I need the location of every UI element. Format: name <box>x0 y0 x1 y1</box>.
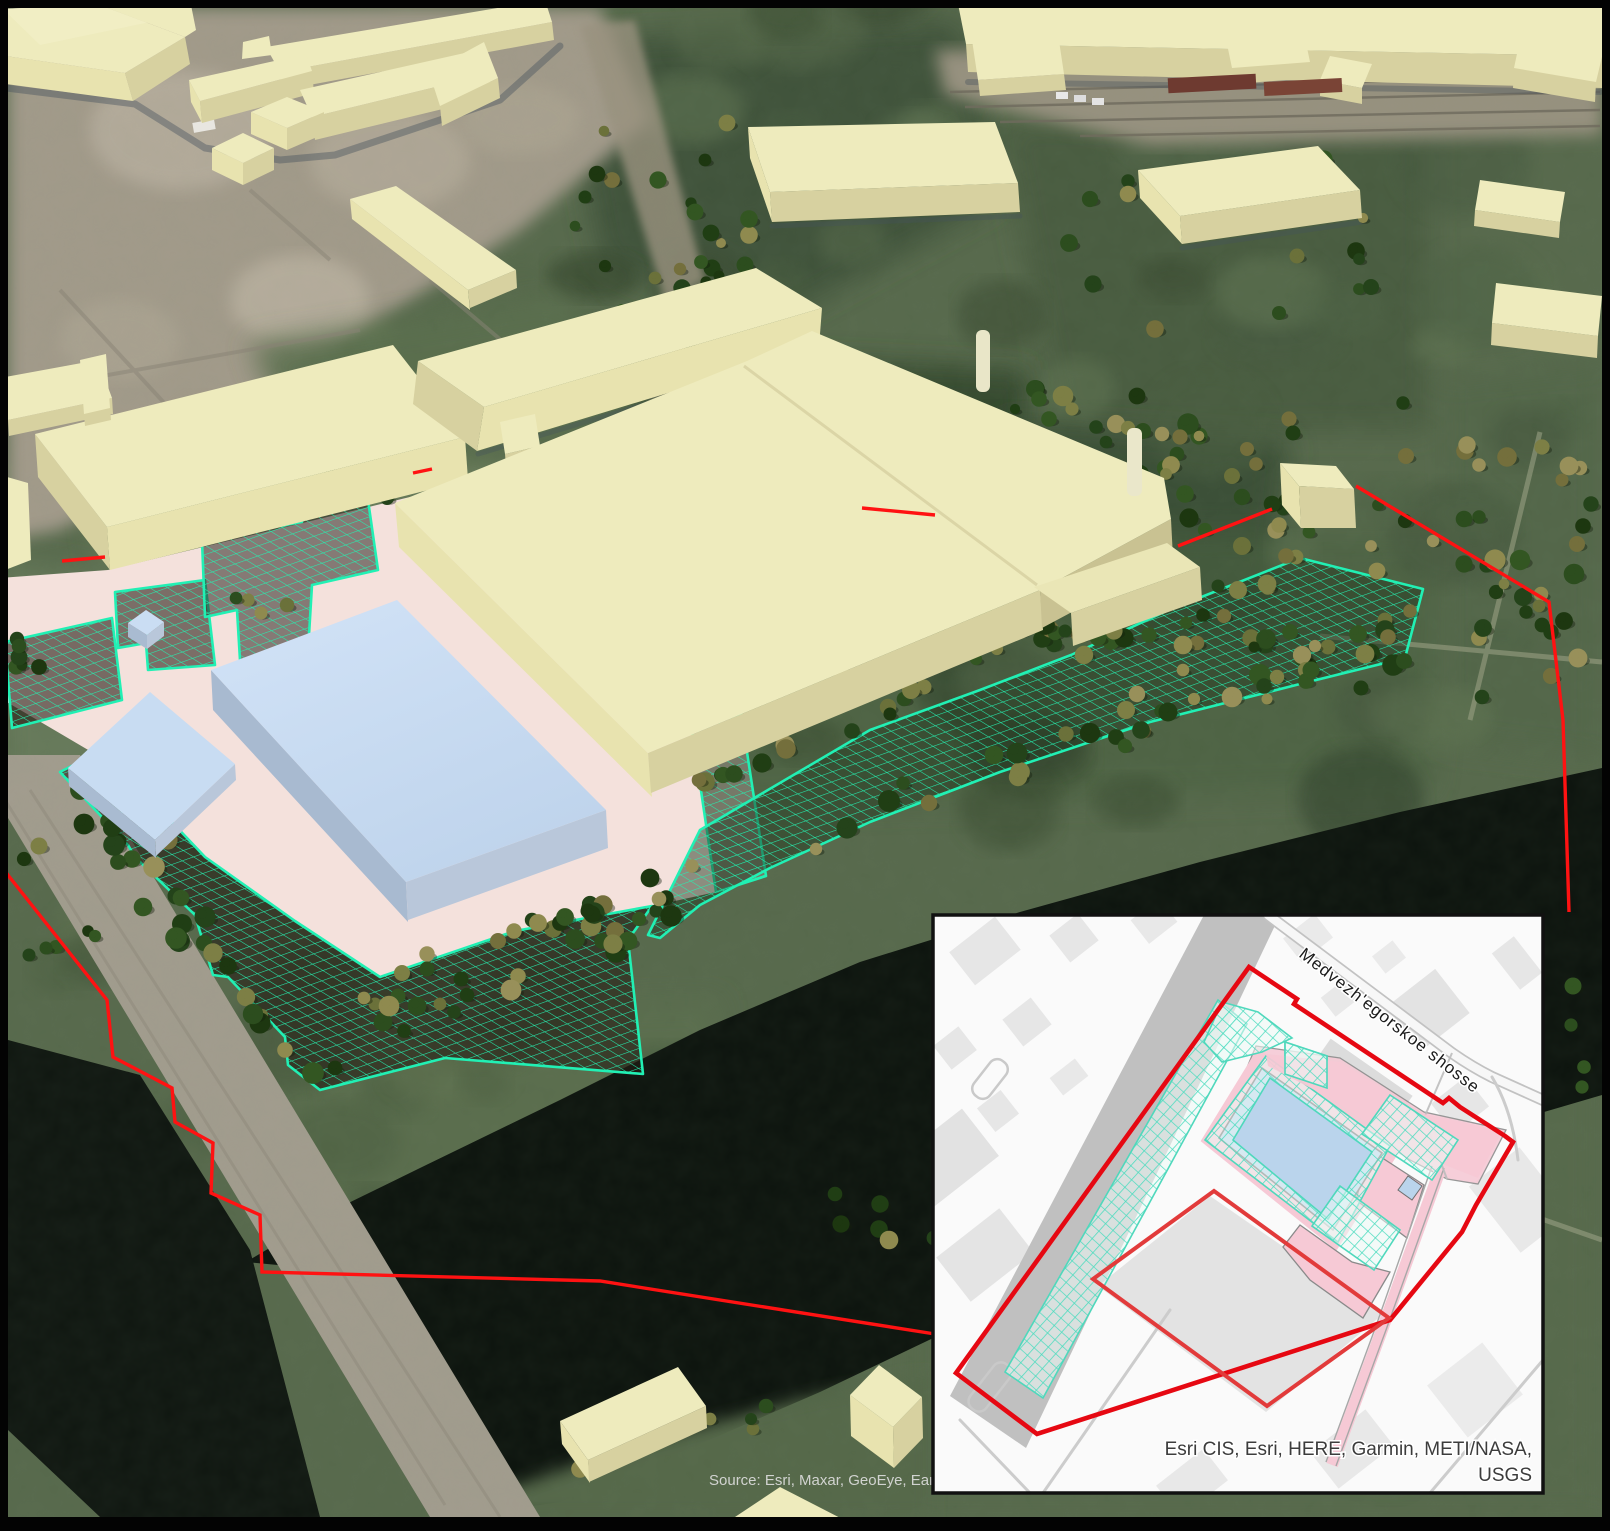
svg-text:USGS: USGS <box>1478 1465 1532 1486</box>
svg-text:Esri CIS, Esri, HERE, Garmin,: Esri CIS, Esri, HERE, Garmin, METI/NASA, <box>1165 1439 1532 1460</box>
